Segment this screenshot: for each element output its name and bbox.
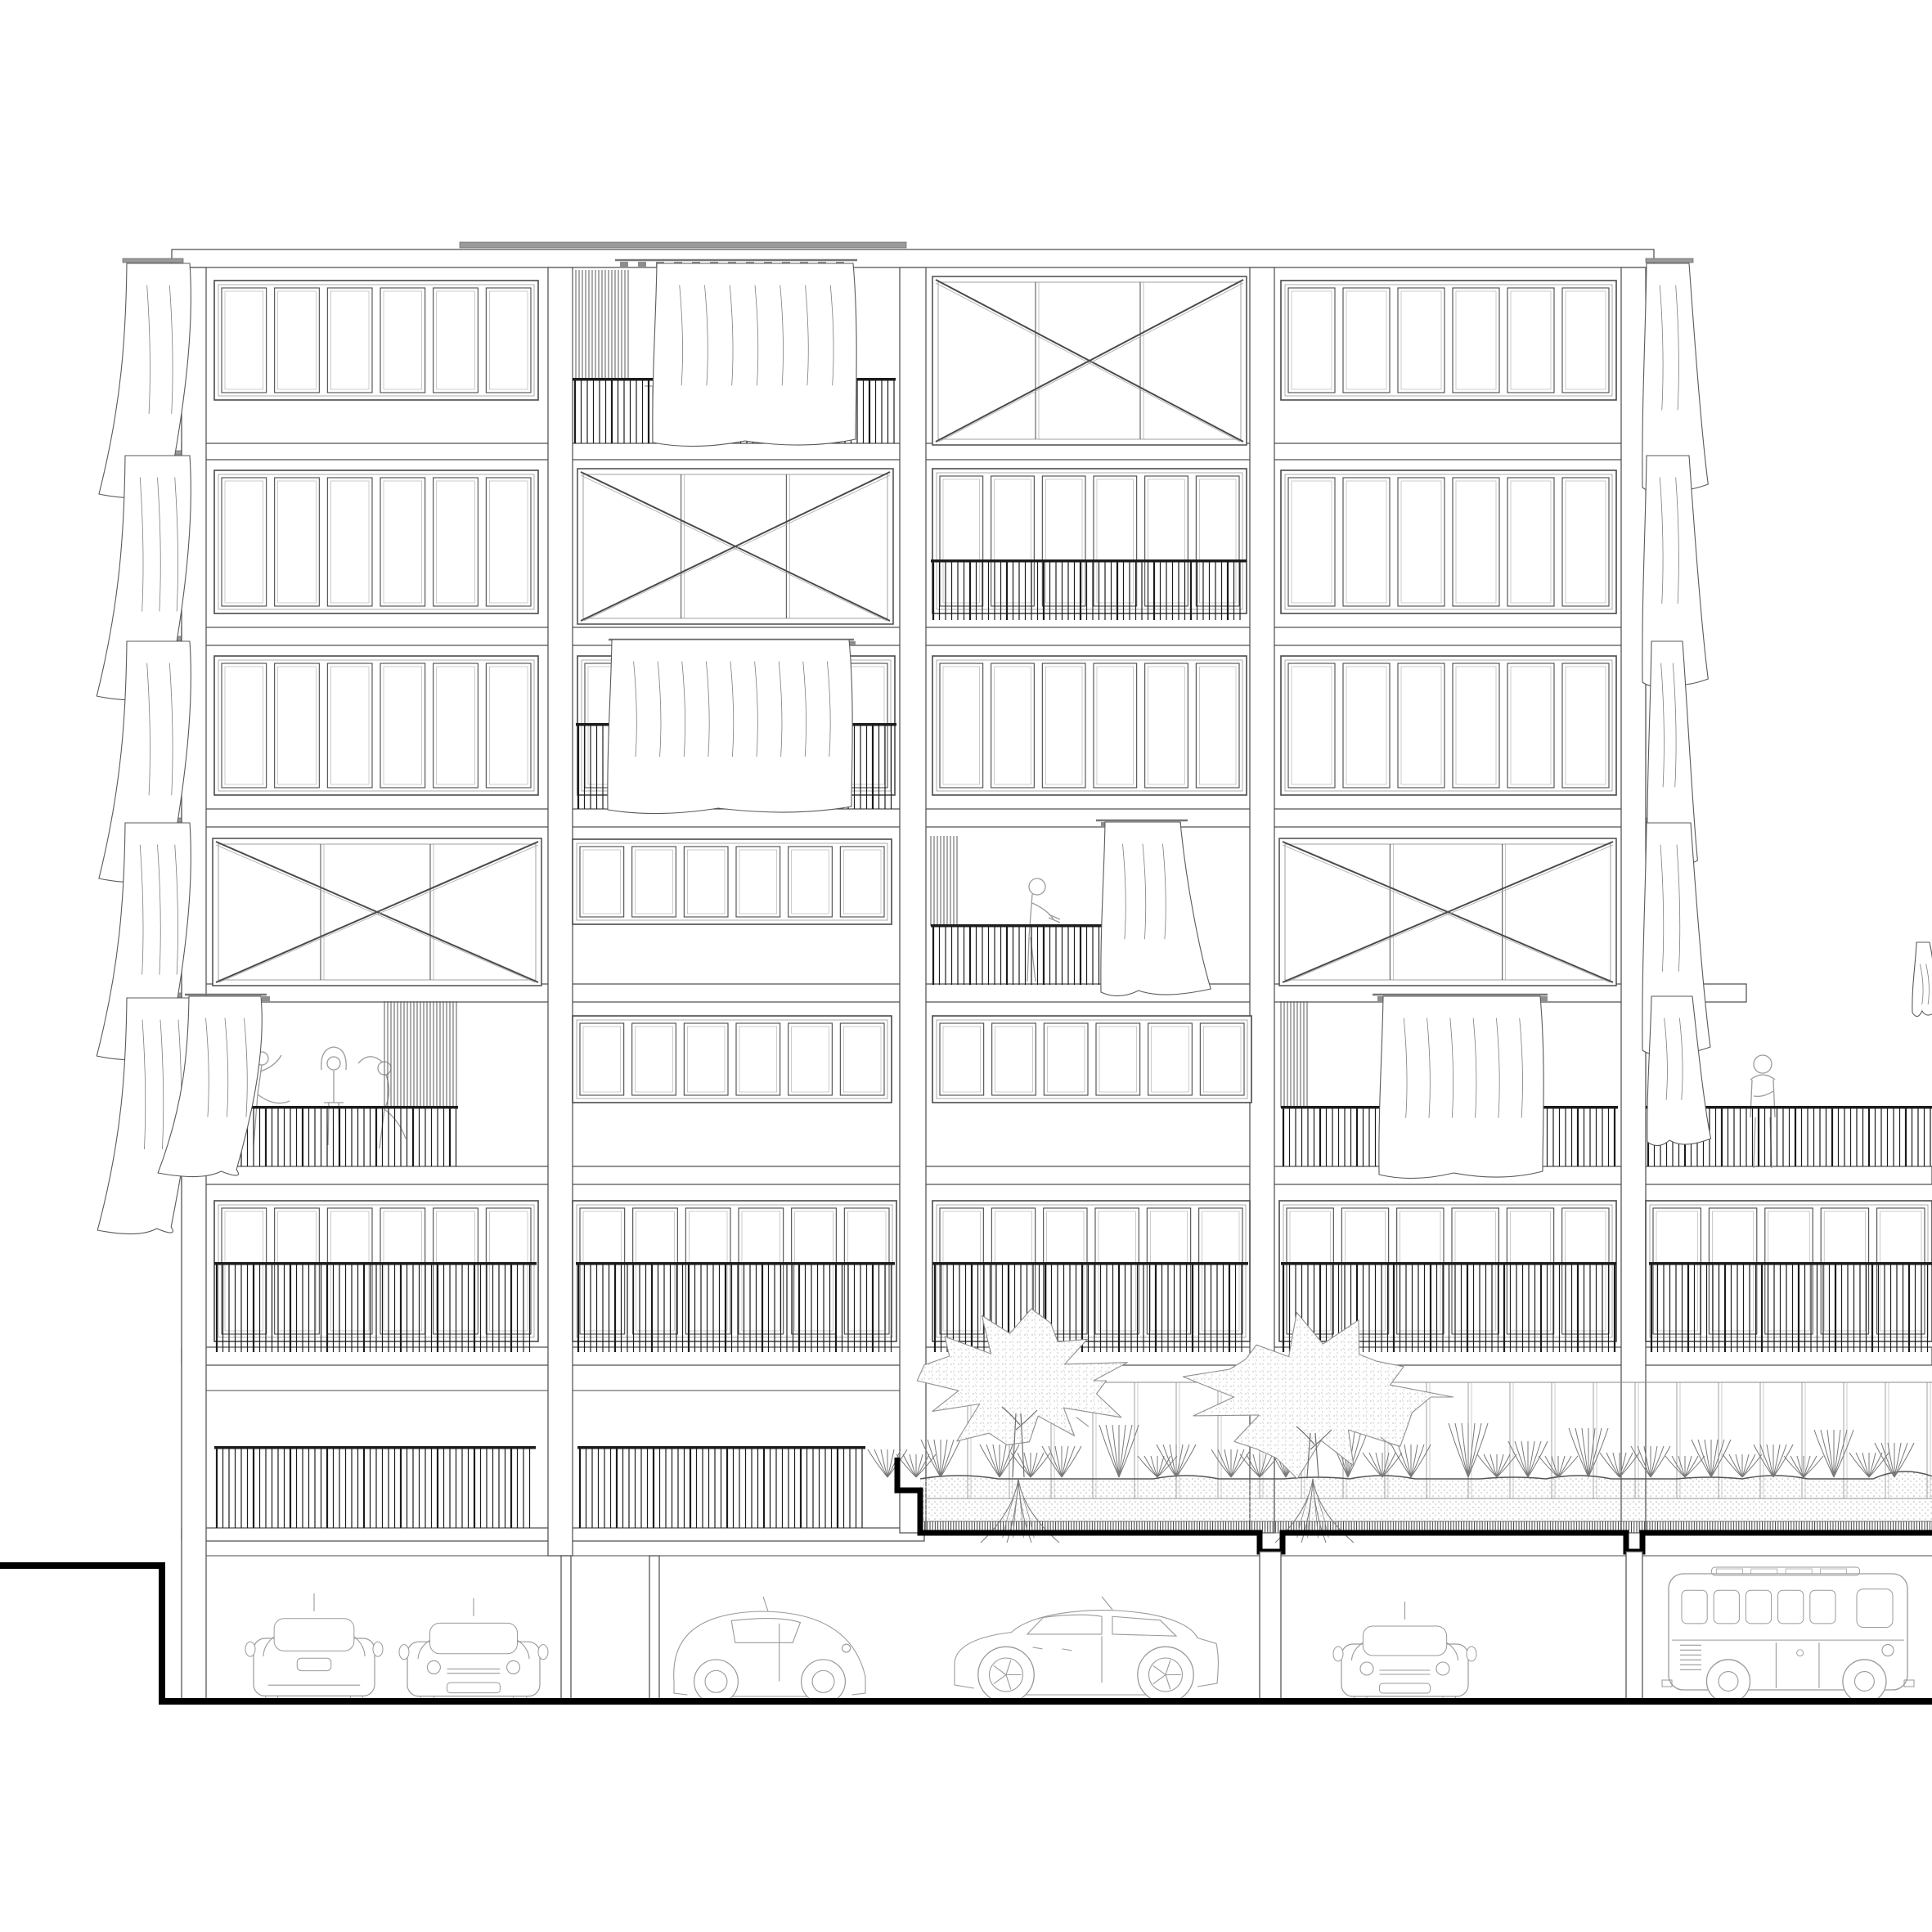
- facade-column-d: [1250, 267, 1274, 1533]
- window-band-l7-bay3: [932, 469, 1247, 613]
- curtain-l6-bay2: [608, 640, 852, 814]
- facade-column-b: [548, 267, 573, 1556]
- window-band-l6-bay3: [932, 656, 1247, 795]
- facade-column-c: [900, 267, 926, 1533]
- curtain-l4-bay4: [1379, 996, 1543, 1179]
- x-brace-panel-l7-bay2: [577, 469, 893, 624]
- curtain-rod-right-l8: [1646, 258, 1693, 263]
- vehicle-vw-bus-side: [1662, 1567, 1914, 1703]
- garage-wall: [561, 1556, 571, 1701]
- x-brace-panel-l8-bay3: [932, 276, 1247, 445]
- roof-guardrail: [460, 242, 906, 248]
- window-band-l8-bay1: [214, 281, 538, 400]
- window-band-l6-bay4: [1281, 656, 1616, 795]
- curtain-rod-left-l8: [123, 258, 183, 263]
- roof-garden-soil: [920, 1471, 1932, 1521]
- window-band-l8-bay4: [1281, 281, 1616, 400]
- window-band-l3-bay3: [932, 1201, 1250, 1341]
- window-band-l5-bay2: [573, 839, 892, 924]
- building-section-drawing: [0, 0, 1932, 1932]
- x-brace-panel-l5-bay4: [1279, 838, 1616, 986]
- curtain-l8-bay2: [653, 263, 856, 447]
- window-band-l4-bay3: [932, 1016, 1251, 1103]
- garage-column-3: [1626, 1552, 1642, 1701]
- roof-parapet: [172, 249, 1654, 267]
- garage-column-1: [649, 1556, 659, 1701]
- window-band-l7-bay1: [214, 470, 538, 613]
- floor-slab-l3: [182, 1166, 1932, 1184]
- garage-column-2: [1260, 1552, 1281, 1701]
- window-band-l7-bay4: [1281, 470, 1616, 613]
- x-brace-panel-l5-bay1: [213, 838, 541, 986]
- window-band-l6-bay1: [214, 656, 538, 795]
- window-band-l4-bay2: [573, 1016, 892, 1103]
